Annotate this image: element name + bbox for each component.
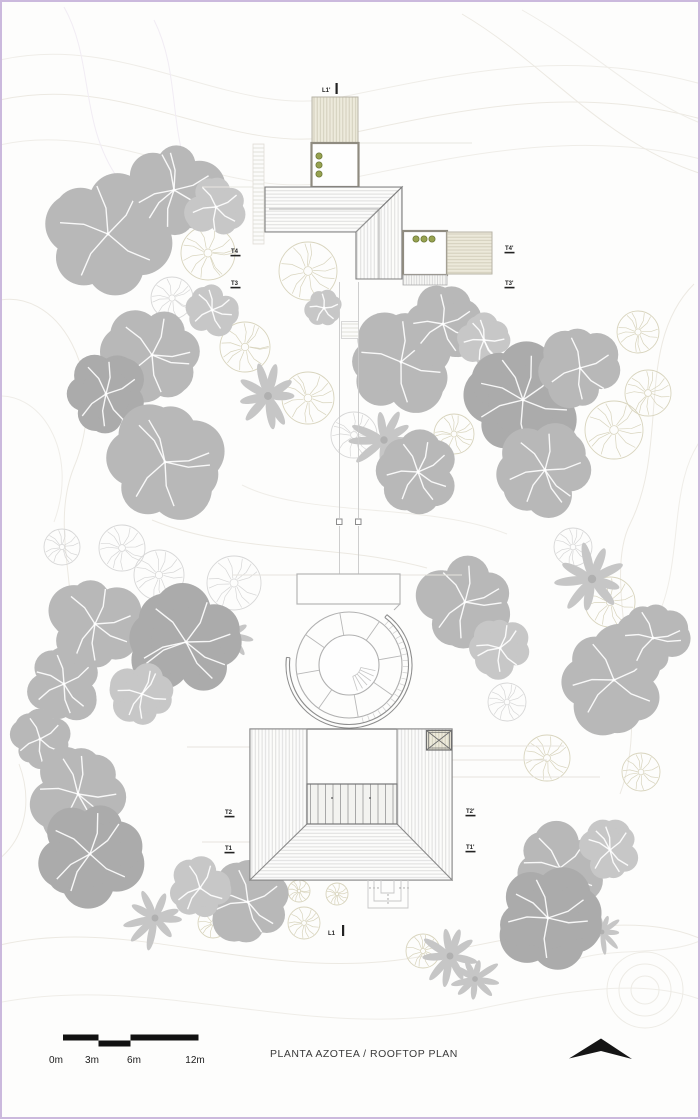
svg-text:T4': T4'	[505, 246, 514, 252]
tree-outline	[99, 525, 145, 571]
scale-label-6m: 6m	[127, 1055, 141, 1066]
planter-dot	[316, 171, 322, 177]
tree-outline	[625, 370, 671, 416]
tree-canopy	[106, 404, 224, 520]
section-marker: T3'	[505, 281, 515, 288]
cut-marker: L1	[328, 925, 344, 937]
tree-canopy	[538, 329, 620, 409]
walkway-post	[356, 519, 362, 525]
svg-text:T1': T1'	[466, 845, 475, 851]
tree-palm	[554, 542, 625, 612]
scale-label-12m: 12m	[185, 1055, 204, 1066]
deck-post	[331, 797, 333, 799]
planter-dot	[316, 153, 322, 159]
scale-bar	[63, 1035, 199, 1047]
walkway-stair	[342, 322, 359, 339]
section-marker: T2'	[466, 809, 476, 816]
planter-dot	[421, 236, 427, 242]
upper-pavilion	[202, 97, 492, 285]
entry-steps	[368, 880, 408, 908]
tree-outline	[207, 556, 261, 610]
planter-dot	[429, 236, 435, 242]
scale-label-0m: 0m	[49, 1055, 63, 1066]
tree-outline	[288, 880, 310, 902]
north-arrow-icon	[569, 1039, 632, 1060]
svg-text:T3': T3'	[505, 281, 514, 287]
tree-outline	[288, 907, 320, 939]
tree-canopy	[304, 290, 341, 326]
tree-outline	[524, 735, 570, 781]
scale-bar-segment	[99, 1041, 131, 1047]
svg-text:L1': L1'	[322, 88, 331, 94]
section-marker: T4'	[505, 246, 515, 253]
svg-text:T2': T2'	[466, 809, 475, 815]
svg-text:T1: T1	[225, 846, 233, 852]
tree-outline	[44, 529, 80, 565]
section-marker: T3	[231, 281, 241, 288]
section-marker: T1	[225, 846, 235, 853]
svg-text:T3: T3	[231, 281, 239, 287]
tree-outline	[326, 883, 348, 905]
tree-outline	[488, 683, 526, 721]
planter-dot	[316, 162, 322, 168]
section-marker: T1'	[466, 845, 476, 852]
roof-terrace-hatch-east	[447, 232, 492, 274]
scale-bar-segment	[63, 1035, 99, 1041]
planter-dot	[413, 236, 419, 242]
tree-canopy	[469, 620, 529, 680]
svg-text:L1: L1	[328, 931, 336, 937]
walkway-post	[337, 519, 343, 525]
deck-band-east	[403, 275, 447, 285]
tree-outline	[181, 226, 235, 280]
tree-outline	[406, 934, 440, 968]
courtyard-deck	[307, 784, 397, 824]
plan-title: PLANTA AZOTEA / ROOFTOP PLAN	[270, 1048, 458, 1060]
platform-notch	[394, 604, 400, 610]
rooftop-plan-sheet: T4T3T4'T3'T2T1T2'T1'L1'L1 PLANTA AZOTEA …	[0, 0, 700, 1119]
tree-outline	[617, 311, 659, 353]
cut-marker: L1'	[322, 83, 338, 94]
scale-bar-segment	[131, 1035, 199, 1041]
ring-roof-inner	[319, 635, 379, 695]
tree-canopy	[496, 423, 591, 518]
svg-text:T2: T2	[225, 810, 233, 816]
tree-canopy	[38, 805, 144, 908]
trellis-west	[253, 144, 264, 244]
tree-palm	[239, 362, 295, 430]
section-marker: T4	[231, 249, 241, 256]
svg-text:T4: T4	[231, 249, 239, 255]
deck-post	[369, 797, 371, 799]
scale-label-3m: 3m	[85, 1055, 99, 1066]
section-marker: T2	[225, 810, 235, 817]
tree-canopy	[500, 867, 602, 970]
roof-platform	[297, 574, 400, 604]
tree-outline	[622, 753, 660, 791]
roof-terrace-hatch-north	[312, 97, 358, 143]
tree-outline	[585, 401, 643, 459]
tree-canopy	[186, 284, 239, 336]
